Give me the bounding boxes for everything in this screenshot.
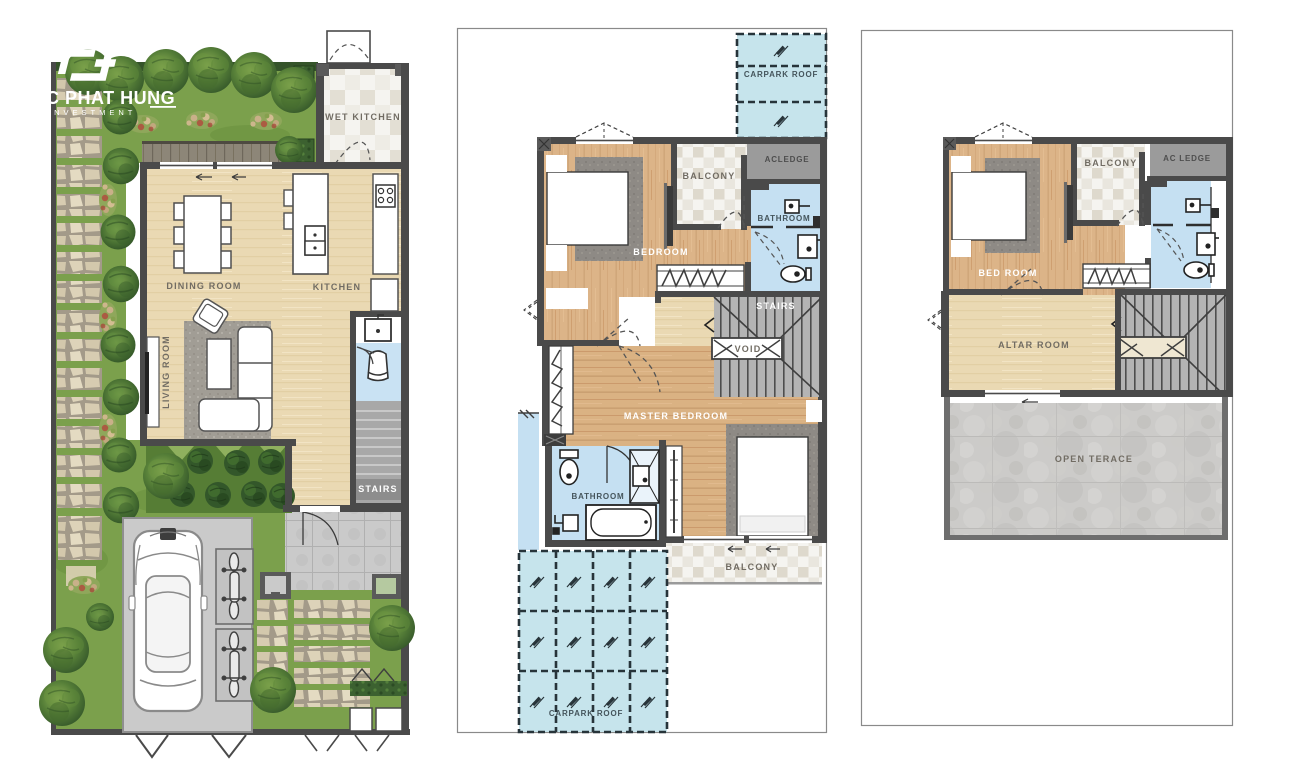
svg-text:BEDROOM: BEDROOM [633,247,688,257]
svg-text:WET KITCHEN: WET KITCHEN [325,112,401,122]
svg-text:C PHAT HUNG: C PHAT HUNG [46,88,175,108]
svg-text:DINING ROOM: DINING ROOM [166,281,241,291]
svg-text:KITCHEN: KITCHEN [313,282,361,292]
svg-text:MASTER BEDROOM: MASTER BEDROOM [624,411,728,421]
svg-text:VOID: VOID [735,344,762,354]
svg-text:BALCONY: BALCONY [683,171,736,181]
svg-text:INVESTMENT: INVESTMENT [48,108,136,117]
svg-text:CARPARK ROOF: CARPARK ROOF [549,709,623,718]
svg-text:BALCONY: BALCONY [726,562,779,572]
svg-text:STAIRS: STAIRS [756,301,796,311]
svg-text:BATHROOM: BATHROOM [758,214,811,223]
svg-text:AC LEDGE: AC LEDGE [1163,154,1211,163]
svg-text:CARPARK ROOF: CARPARK ROOF [744,70,818,79]
svg-text:LIVING ROOM: LIVING ROOM [161,335,171,409]
svg-text:BALCONY: BALCONY [1085,158,1138,168]
svg-text:BED ROOM: BED ROOM [978,268,1037,278]
svg-text:OPEN TERACE: OPEN TERACE [1055,454,1133,464]
svg-text:STAIRS: STAIRS [358,484,398,494]
svg-text:ALTAR ROOM: ALTAR ROOM [998,340,1070,350]
svg-text:ACLEDGE: ACLEDGE [765,155,810,164]
svg-text:BATHROOM: BATHROOM [572,492,625,501]
